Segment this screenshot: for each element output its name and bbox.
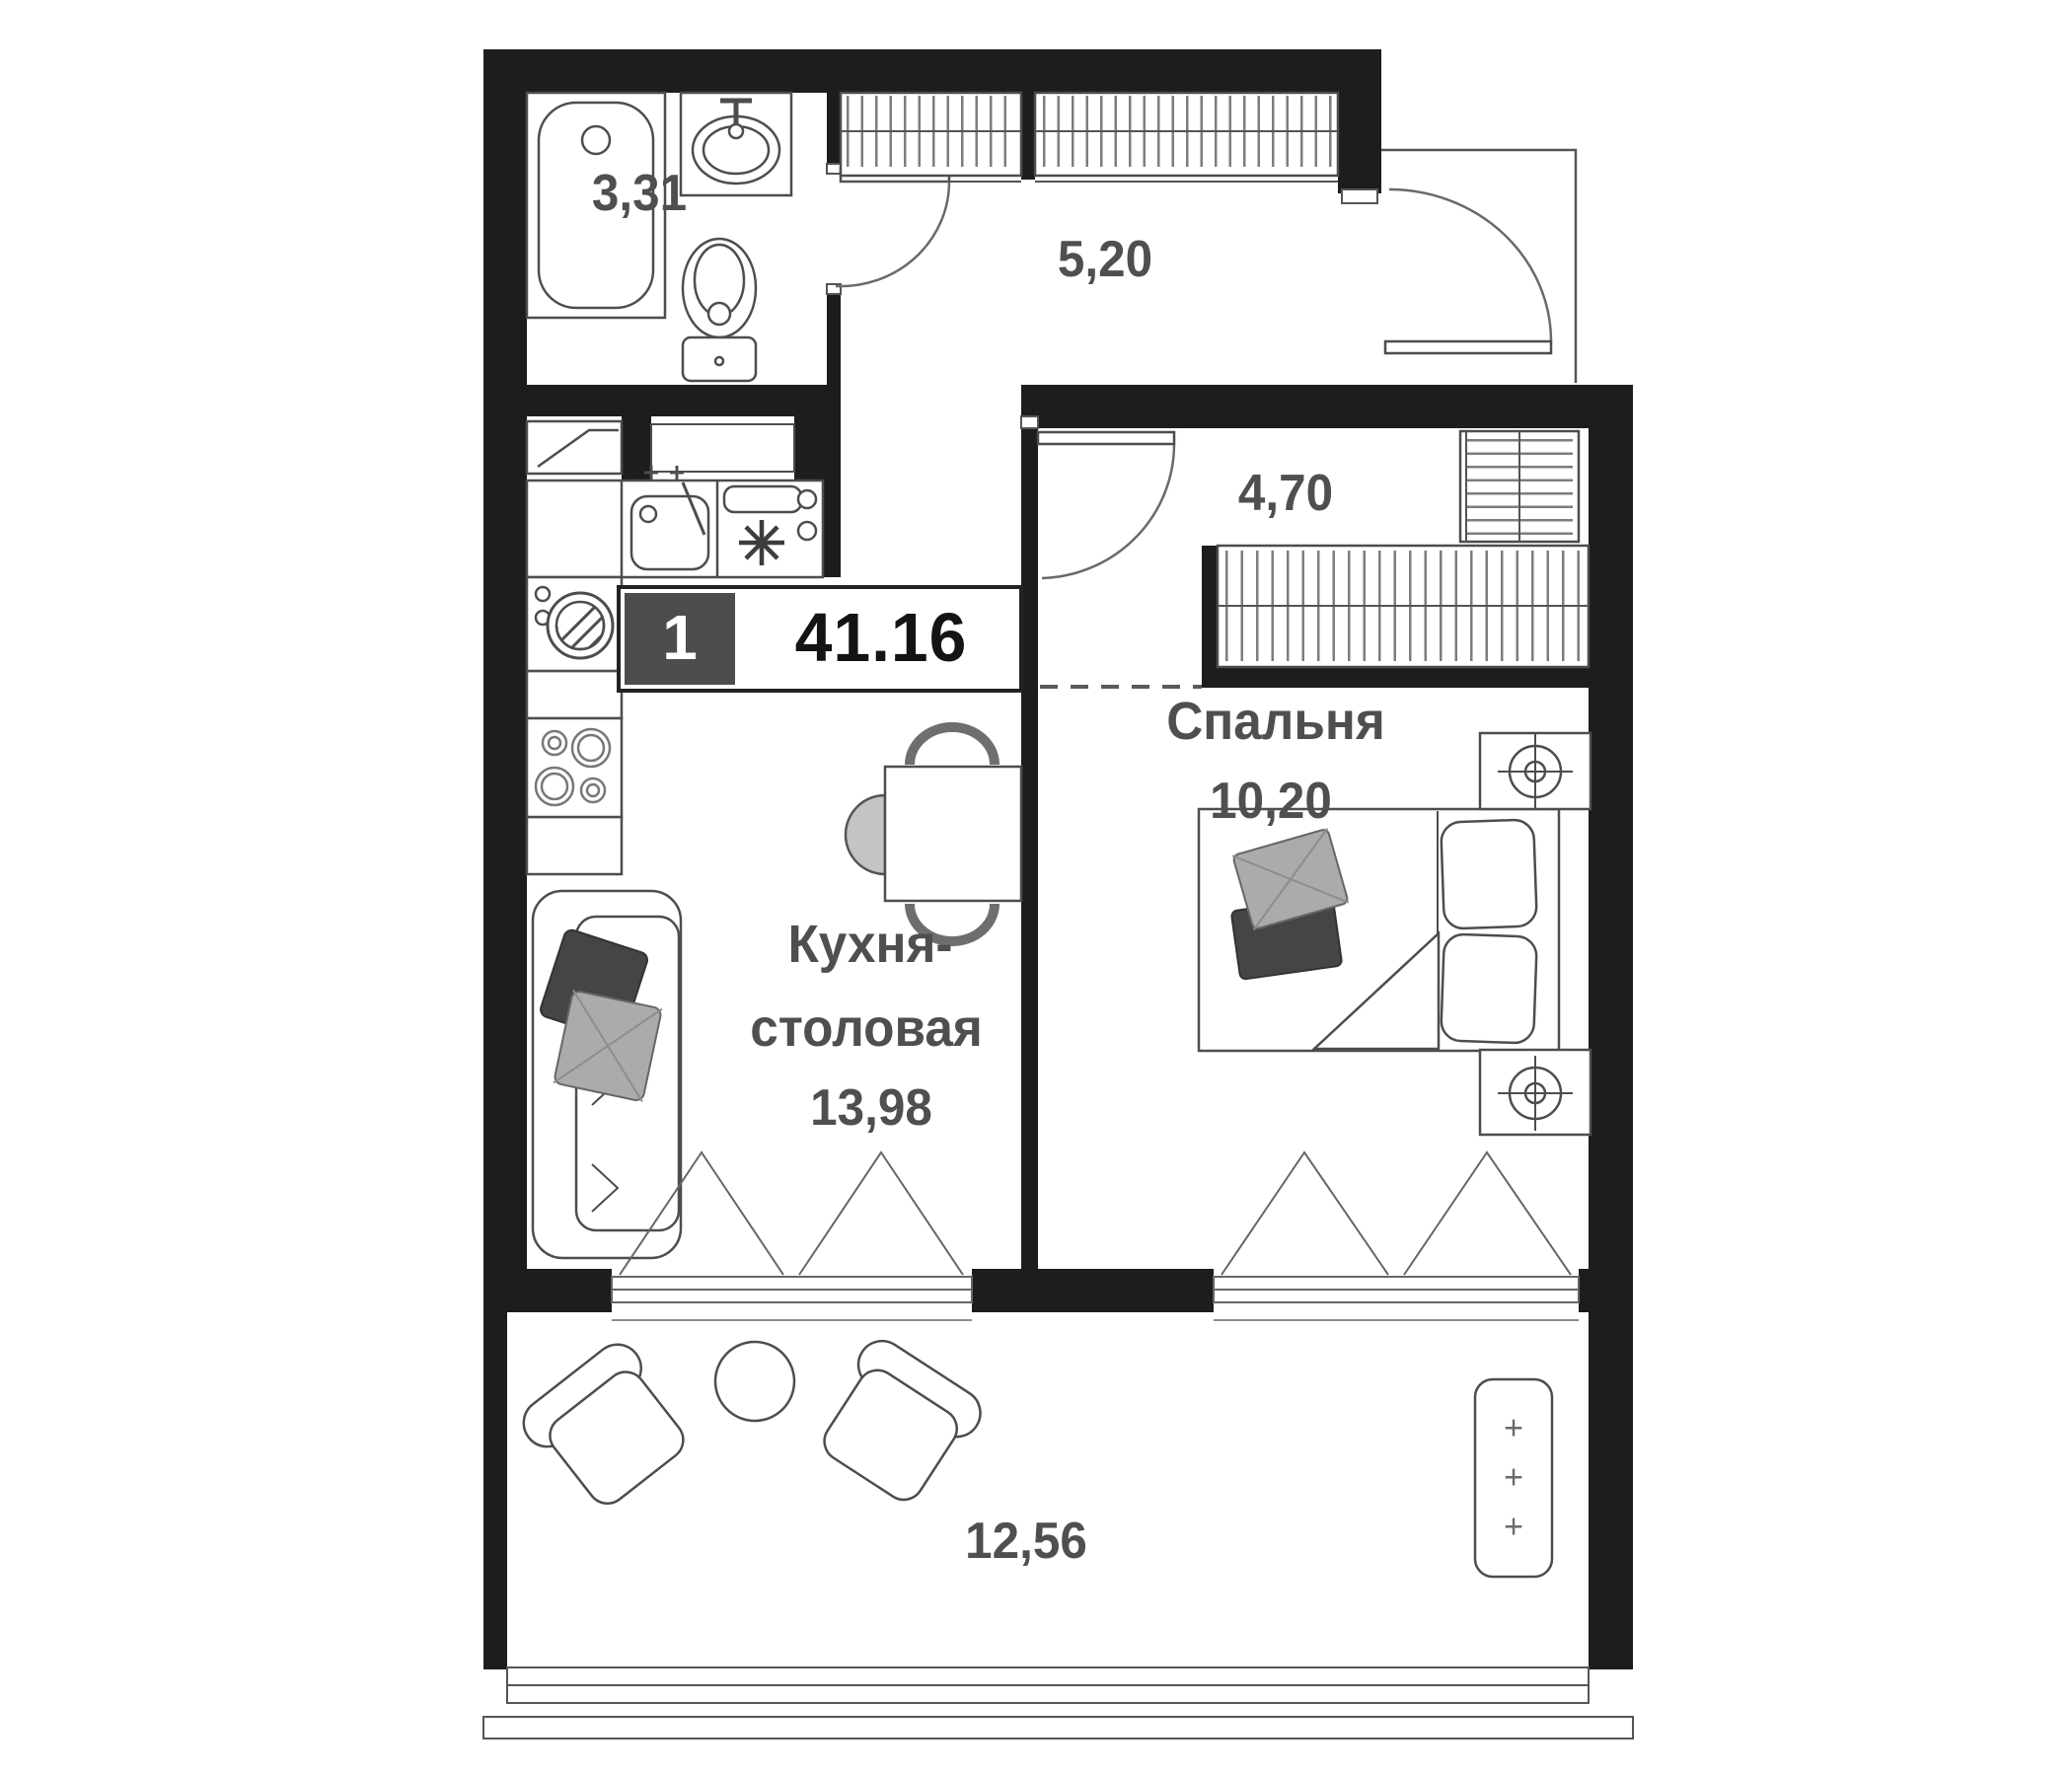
nightstand-top — [1480, 733, 1591, 809]
bathroom-sink-icon — [681, 93, 791, 195]
label-kitchen-name-line2: столовая — [750, 1001, 983, 1055]
label-bathroom-area: 3,31 — [592, 168, 687, 219]
balcony-armchair-2 — [805, 1332, 990, 1514]
toilet-icon — [683, 239, 756, 381]
badge-total-area: 41.16 — [795, 598, 968, 677]
balcony-armchair-1 — [514, 1335, 701, 1519]
label-balcony-area: 12,56 — [965, 1516, 1087, 1567]
window-bedroom — [1214, 1152, 1579, 1320]
dining-table-icon — [885, 767, 1021, 901]
floorplan-drawing — [0, 0, 2072, 1776]
hallway-closet-b — [1035, 93, 1338, 182]
label-kitchen-name-line1: Кухня- — [787, 918, 952, 971]
floor-plan: 3,31 5,20 4,70 Спальня 10,20 Кухня- стол… — [0, 0, 2072, 1776]
label-corridor-area: 4,70 — [1238, 468, 1333, 519]
dining-chair-top — [910, 727, 995, 765]
balcony-glazing — [483, 1667, 1633, 1739]
bedroom-wardrobe-icon — [1218, 546, 1589, 667]
hob-icon — [527, 718, 622, 817]
label-kitchen-area: 13,98 — [810, 1082, 932, 1134]
label-hallway-area: 5,20 — [1058, 234, 1152, 285]
washing-machine-icon — [527, 577, 622, 671]
balcony-side-table-icon — [715, 1342, 794, 1421]
hallway-closet-a — [841, 93, 1021, 182]
badge-room-count: 1 — [662, 601, 698, 674]
planter-plus-mark: + — [1504, 1410, 1523, 1448]
corridor-closet-icon — [1460, 431, 1579, 542]
label-bedroom-area: 10,20 — [1210, 776, 1332, 827]
nightstand-bottom — [1480, 1050, 1591, 1135]
dining-chair-left — [846, 795, 885, 874]
wall-niche — [651, 424, 794, 472]
corridor-door — [1038, 432, 1174, 578]
bathroom-door — [836, 170, 949, 286]
planter-plus-mark: + — [1504, 1459, 1523, 1498]
vent-shaft-icon — [527, 421, 622, 474]
planter-plus-mark: + — [1504, 1509, 1523, 1547]
sofa-pillow-light — [554, 990, 662, 1101]
entrance-door — [1385, 189, 1551, 353]
label-bedroom-name: Спальня — [1166, 695, 1385, 748]
